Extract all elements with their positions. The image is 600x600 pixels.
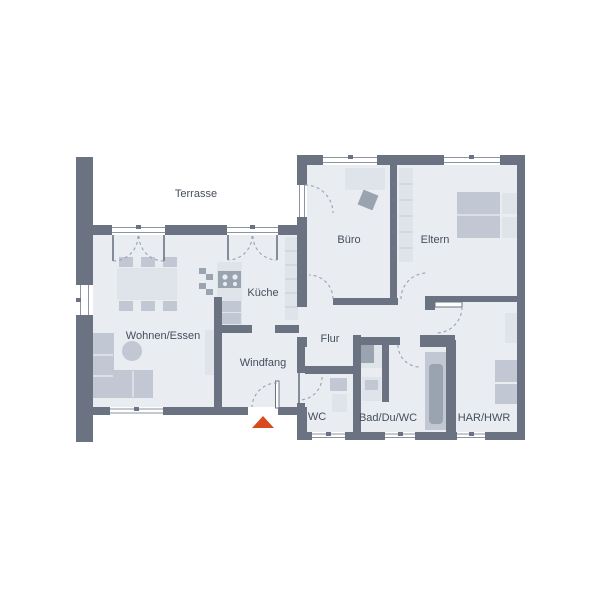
buero-west-wall	[297, 165, 307, 185]
north-wall	[377, 155, 444, 165]
burner	[222, 274, 227, 279]
wohnen-windfang-wall	[214, 297, 222, 407]
east-wall	[517, 155, 525, 440]
label-terrasse: Terrasse	[175, 188, 217, 200]
windfang-corner-block	[297, 337, 307, 347]
wc-west-wall	[297, 347, 305, 373]
dining-chair	[141, 301, 155, 311]
label-kueche: Küche	[247, 287, 278, 299]
living-north-wall	[165, 225, 227, 235]
label-wohnen-essen: Wohnen/Essen	[126, 330, 200, 342]
entrance-door-leaf	[276, 381, 280, 408]
wc-toilet	[332, 394, 347, 412]
har-door-leaf	[435, 302, 462, 307]
wc-west-wall	[297, 403, 305, 432]
desk	[345, 168, 385, 190]
dining-chair	[141, 257, 155, 267]
label-buero: Büro	[337, 234, 360, 246]
kueche-south-wall	[275, 325, 299, 333]
west-wall-upper	[76, 157, 93, 285]
dining-chair	[163, 257, 177, 267]
bad-inner-wall	[382, 345, 389, 402]
har-door-stub	[427, 302, 435, 310]
label-eltern: Eltern	[421, 234, 450, 246]
bad-har-wall	[446, 340, 456, 432]
flur-north-wall	[333, 298, 398, 305]
label-windfang: Windfang	[240, 357, 286, 369]
floor-plan-page: Terrasse Büro Eltern Küche Wohnen/Essen …	[0, 0, 600, 600]
har-shelf	[505, 313, 517, 343]
south-wall	[415, 432, 457, 440]
label-flur: Flur	[321, 333, 340, 345]
south-wall	[345, 432, 385, 440]
burner	[223, 282, 227, 286]
terrace-door-buero	[297, 185, 307, 217]
stove	[218, 271, 241, 288]
dining-chair	[119, 257, 133, 267]
wc-north-wall	[305, 366, 353, 374]
kueche-south-wall	[222, 325, 252, 333]
bad-cistern	[365, 380, 378, 390]
bathtub-inner	[429, 364, 443, 424]
bed-pillow	[502, 217, 517, 238]
burner	[232, 274, 237, 279]
bad-north-wall	[361, 337, 400, 345]
south-wall	[307, 432, 312, 440]
kitchen-east-wall	[297, 217, 307, 307]
floor-plan: Terrasse Büro Eltern Küche Wohnen/Essen …	[0, 0, 600, 600]
living-south-wall	[93, 407, 110, 415]
west-wall-lower	[76, 315, 93, 442]
label-har: HAR/HWR	[458, 412, 511, 424]
burner	[233, 282, 237, 286]
north-wall	[297, 155, 323, 165]
dining-chair	[163, 301, 177, 311]
dining-table	[117, 268, 177, 300]
dining-chair	[119, 301, 133, 311]
furniture-wc	[330, 378, 347, 412]
entrance-marker	[252, 416, 274, 428]
eltern-south-wall	[435, 296, 517, 302]
living-south-wall	[163, 407, 248, 415]
dryer	[495, 384, 517, 404]
wc-sink	[330, 378, 347, 391]
south-wall	[485, 432, 525, 440]
living-north-wall	[93, 225, 112, 235]
bed-pillow	[502, 193, 517, 214]
buero-eltern-wall	[390, 165, 397, 298]
label-bad: Bad/Du/WC	[359, 412, 417, 424]
sideboard	[205, 330, 214, 375]
round-rug	[122, 341, 142, 361]
washer	[495, 360, 517, 382]
label-wc: WC	[308, 411, 326, 423]
